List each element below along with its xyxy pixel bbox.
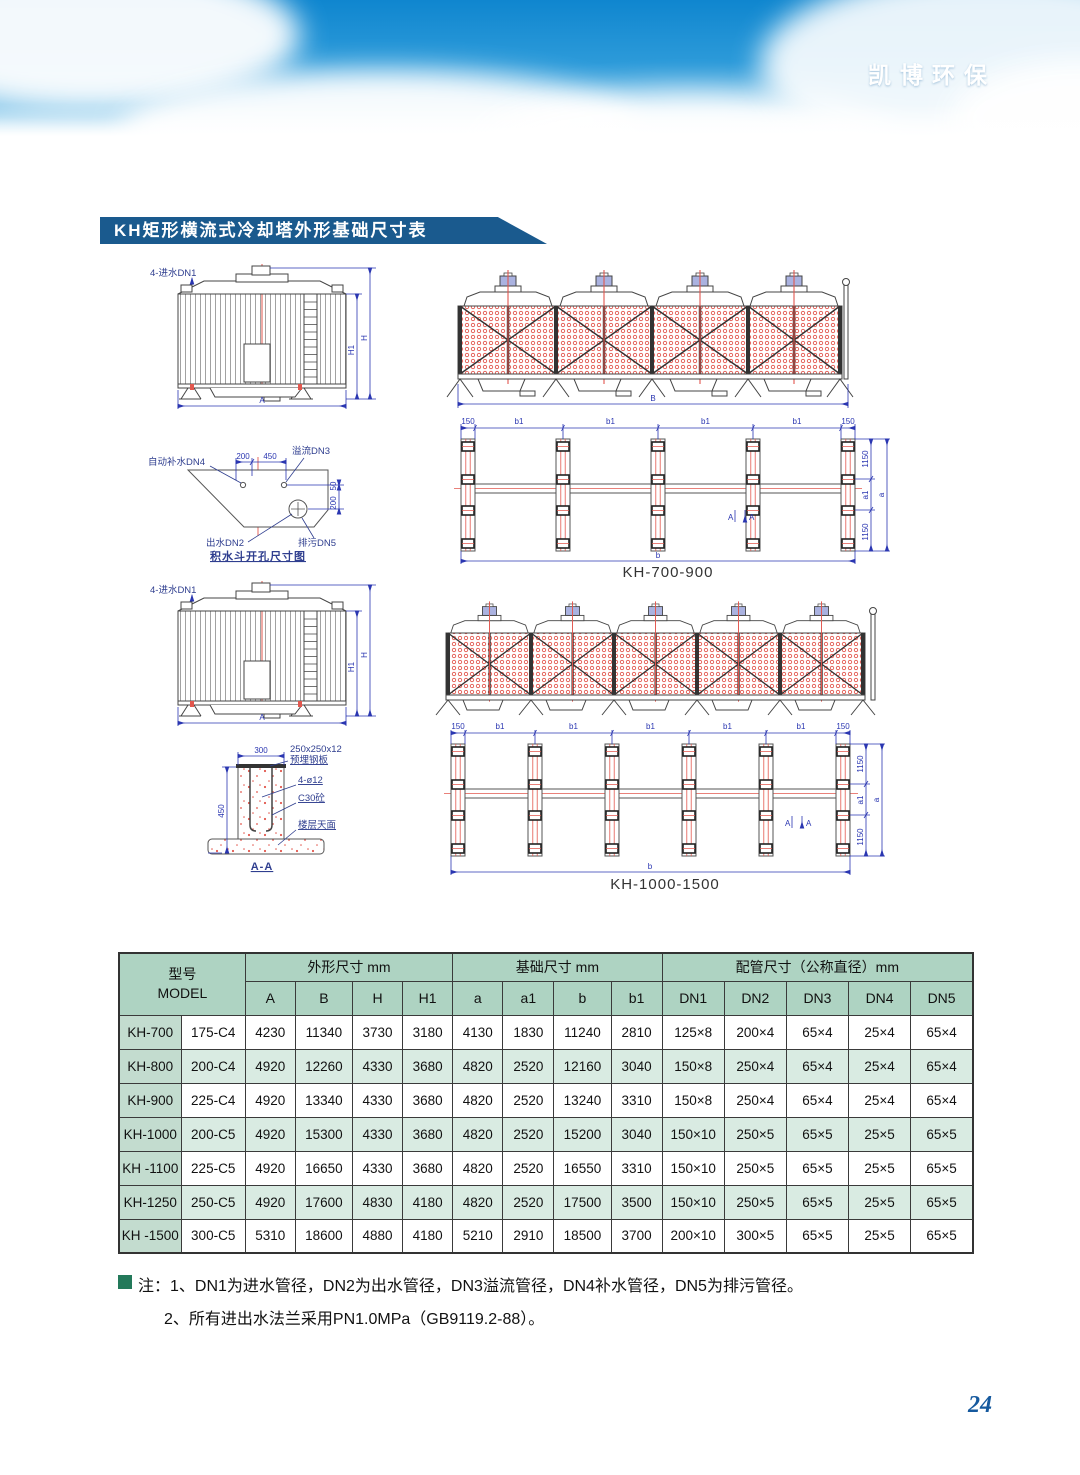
note-line-1: 注： 1、DN1为进水管径，DN2为出水管径，DN3溢流管径，DN4补水管径，D… bbox=[118, 1272, 978, 1296]
spec-cell: 65×4 bbox=[911, 1049, 973, 1083]
spec-cell: 3680 bbox=[403, 1083, 453, 1117]
col-header: H1 bbox=[403, 981, 453, 1015]
tower-side-view-2: 4-进水DN1 A H1 H bbox=[148, 581, 378, 731]
spec-cell: 3680 bbox=[403, 1117, 453, 1151]
table-row: KH-900225-C44920133404330368048202520132… bbox=[119, 1083, 973, 1117]
note-bullet-icon bbox=[118, 1275, 132, 1289]
spec-cell: 200×10 bbox=[662, 1219, 724, 1253]
spec-cell: 4820 bbox=[453, 1083, 503, 1117]
spec-cell: 65×5 bbox=[786, 1219, 848, 1253]
spec-cell: 25×5 bbox=[849, 1185, 911, 1219]
spec-cell: 3310 bbox=[611, 1151, 662, 1185]
dim-b1: b1 bbox=[723, 722, 732, 731]
spec-cell: 250×4 bbox=[724, 1049, 786, 1083]
table-row: KH-700175-C44230113403730318041301830112… bbox=[119, 1015, 973, 1049]
spec-cell: 4830 bbox=[352, 1185, 402, 1219]
spec-cell: 4820 bbox=[453, 1117, 503, 1151]
outlet-label: 出水DN2 bbox=[206, 537, 244, 549]
spec-table-body: KH-700175-C44230113403730318041301830112… bbox=[119, 1015, 973, 1253]
spec-cell: 200×4 bbox=[724, 1015, 786, 1049]
spec-cell: 25×4 bbox=[849, 1015, 911, 1049]
floor-label: 楼层天面 bbox=[298, 819, 336, 831]
section-mark-A: A bbox=[785, 819, 791, 828]
col-header: b bbox=[554, 981, 611, 1015]
dim-b1: b1 bbox=[701, 417, 710, 426]
spec-cell: 4130 bbox=[453, 1015, 503, 1049]
model-cell: KH -1100 bbox=[119, 1151, 181, 1185]
spec-cell: 25×4 bbox=[849, 1049, 911, 1083]
spec-cell: 65×5 bbox=[911, 1219, 973, 1253]
spec-cell: 65×5 bbox=[911, 1117, 973, 1151]
spec-cell: 17600 bbox=[295, 1185, 352, 1219]
spec-cell: 5310 bbox=[245, 1219, 295, 1253]
dim-150: 150 bbox=[451, 722, 465, 731]
spec-cell: 4180 bbox=[403, 1219, 453, 1253]
hopper-detail-drawing: 200 450 50 200 自动补水DN4 溢流DN3 出水DN2 排污DN5… bbox=[146, 432, 376, 562]
spec-cell: 4920 bbox=[245, 1151, 295, 1185]
spec-cell: 4920 bbox=[245, 1117, 295, 1151]
dim-b1: b1 bbox=[515, 417, 524, 426]
section-mark-A: A bbox=[806, 819, 812, 828]
dim-a: a bbox=[872, 797, 881, 802]
spec-cell: 150×8 bbox=[662, 1083, 724, 1117]
col-header: DN2 bbox=[724, 981, 786, 1015]
note-line-2: 2、所有进出水法兰采用PN1.0MPa（GB9119.2-88）。 bbox=[164, 1305, 978, 1329]
spec-cell: 3680 bbox=[403, 1049, 453, 1083]
spec-cell: 4330 bbox=[352, 1151, 402, 1185]
plan2-caption: KH-1000-1500 bbox=[430, 876, 900, 893]
spec-cell: 25×4 bbox=[849, 1083, 911, 1117]
spec-cell: 4820 bbox=[453, 1151, 503, 1185]
page-number: 24 bbox=[968, 1392, 992, 1419]
model-label-en: MODEL bbox=[120, 984, 245, 1004]
spec-cell: 18600 bbox=[295, 1219, 352, 1253]
spec-cell: 4920 bbox=[245, 1049, 295, 1083]
dim-A: A bbox=[259, 396, 265, 405]
overflow-label: 溢流DN3 bbox=[292, 445, 330, 457]
dim-b: b bbox=[648, 862, 653, 871]
spec-cell: 4820 bbox=[453, 1185, 503, 1219]
dim-150: 150 bbox=[841, 417, 855, 426]
dim-450: 450 bbox=[217, 804, 226, 818]
spec-cell: 65×4 bbox=[911, 1015, 973, 1049]
spec-cell: 250×5 bbox=[724, 1185, 786, 1219]
spec-cell: 65×4 bbox=[786, 1083, 848, 1117]
section-aa-drawing: 300 450 250x250x12 预埋钢板 4-ø12 C30砼 楼层天面 … bbox=[150, 735, 380, 875]
spec-cell: 300×5 bbox=[724, 1219, 786, 1253]
spec-cell: 150×10 bbox=[662, 1117, 724, 1151]
col-header-model: 型号 MODEL bbox=[119, 953, 245, 1015]
spec-cell: 2520 bbox=[503, 1117, 554, 1151]
spec-cell: 65×4 bbox=[786, 1049, 848, 1083]
col-header: DN4 bbox=[849, 981, 911, 1015]
dim-150: 150 bbox=[836, 722, 850, 731]
spec-cell: 4920 bbox=[245, 1083, 295, 1117]
elevation-4cell-drawing: B bbox=[440, 262, 870, 410]
dim-200r: 200 bbox=[329, 496, 338, 510]
note-label: 注： bbox=[138, 1272, 170, 1296]
spec-cell: 2520 bbox=[503, 1083, 554, 1117]
bolts-label: 4-ø12 bbox=[298, 775, 323, 786]
dim-300: 300 bbox=[254, 746, 268, 755]
spec-cell: 4230 bbox=[245, 1015, 295, 1049]
spec-cell: 11340 bbox=[295, 1015, 352, 1049]
col-header: H bbox=[352, 981, 402, 1015]
spec-cell: 3730 bbox=[352, 1015, 402, 1049]
spec-cell: 2810 bbox=[611, 1015, 662, 1049]
spec-table: 型号 MODEL 外形尺寸 mm 基础尺寸 mm 配管尺寸（公称直径）mm A … bbox=[118, 952, 974, 1254]
spec-cell: 150×8 bbox=[662, 1049, 724, 1083]
type-cell: 300-C5 bbox=[181, 1219, 245, 1253]
spec-cell: 17500 bbox=[554, 1185, 611, 1219]
col-header: a1 bbox=[503, 981, 554, 1015]
spec-cell: 150×10 bbox=[662, 1185, 724, 1219]
type-cell: 175-C4 bbox=[181, 1015, 245, 1049]
spec-cell: 4180 bbox=[403, 1185, 453, 1219]
dim-b: b bbox=[656, 551, 661, 560]
dim-b1: b1 bbox=[646, 722, 655, 731]
spec-cell: 150×10 bbox=[662, 1151, 724, 1185]
banner-fade bbox=[0, 104, 1080, 138]
spec-cell: 3310 bbox=[611, 1083, 662, 1117]
spec-cell: 15200 bbox=[554, 1117, 611, 1151]
spec-cell: 3180 bbox=[403, 1015, 453, 1049]
spec-cell: 250×4 bbox=[724, 1083, 786, 1117]
spec-cell: 2520 bbox=[503, 1151, 554, 1185]
spec-cell: 16650 bbox=[295, 1151, 352, 1185]
col-header: b1 bbox=[611, 981, 662, 1015]
concrete-label: C30砼 bbox=[298, 792, 325, 804]
dim-a: a bbox=[877, 492, 886, 497]
table-row: KH-800200-C44920122604330368048202520121… bbox=[119, 1049, 973, 1083]
table-row: KH -1500300-C553101860048804180521029101… bbox=[119, 1219, 973, 1253]
spec-cell: 4880 bbox=[352, 1219, 402, 1253]
spec-cell: 4330 bbox=[352, 1117, 402, 1151]
type-cell: 225-C4 bbox=[181, 1083, 245, 1117]
spec-cell: 250×5 bbox=[724, 1117, 786, 1151]
spec-cell: 125×8 bbox=[662, 1015, 724, 1049]
spec-cell: 13240 bbox=[554, 1083, 611, 1117]
model-cell: KH-900 bbox=[119, 1083, 181, 1117]
model-cell: KH-1250 bbox=[119, 1185, 181, 1219]
dim-H: H bbox=[360, 652, 369, 658]
dim-H1: H1 bbox=[347, 344, 356, 355]
note-text-1: 1、DN1为进水管径，DN2为出水管径，DN3溢流管径，DN4补水管径，DN5为… bbox=[170, 1272, 803, 1296]
col-header: DN1 bbox=[662, 981, 724, 1015]
dim-a1: a1 bbox=[861, 490, 870, 499]
dim-1150: 1150 bbox=[856, 755, 865, 773]
spec-cell: 3040 bbox=[611, 1049, 662, 1083]
col-header: DN5 bbox=[911, 981, 973, 1015]
spec-cell: 65×5 bbox=[786, 1185, 848, 1219]
group-header-piping: 配管尺寸（公称直径）mm bbox=[662, 953, 973, 981]
spec-cell: 4330 bbox=[352, 1049, 402, 1083]
spec-cell: 11240 bbox=[554, 1015, 611, 1049]
plate-label: 预埋钢板 bbox=[290, 754, 329, 766]
spec-cell: 65×5 bbox=[786, 1151, 848, 1185]
dim-200: 200 bbox=[236, 452, 250, 461]
model-cell: KH-1000 bbox=[119, 1117, 181, 1151]
spec-cell: 4330 bbox=[352, 1083, 402, 1117]
dim-b1: b1 bbox=[496, 722, 505, 731]
dim-b1: b1 bbox=[797, 722, 806, 731]
dim-1150: 1150 bbox=[856, 828, 865, 846]
spec-cell: 4820 bbox=[453, 1049, 503, 1083]
model-label-cn: 型号 bbox=[120, 965, 245, 985]
dim-1150: 1150 bbox=[861, 450, 870, 468]
spec-cell: 250×5 bbox=[724, 1151, 786, 1185]
group-header-foundation: 基础尺寸 mm bbox=[453, 953, 662, 981]
spec-cell: 16550 bbox=[554, 1151, 611, 1185]
dim-450: 450 bbox=[263, 452, 277, 461]
dim-b1: b1 bbox=[606, 417, 615, 426]
spec-cell: 12260 bbox=[295, 1049, 352, 1083]
dim-H: H bbox=[360, 335, 369, 341]
spec-cell: 25×5 bbox=[849, 1151, 911, 1185]
dim-b1: b1 bbox=[569, 722, 578, 731]
type-cell: 200-C5 bbox=[181, 1117, 245, 1151]
dim-B: B bbox=[650, 394, 655, 403]
dim-50: 50 bbox=[329, 481, 338, 490]
plate-label-size: 250x250x12 bbox=[290, 744, 342, 755]
spec-cell: 3040 bbox=[611, 1117, 662, 1151]
col-header: A bbox=[245, 981, 295, 1015]
tower-side-view-1: 4-进水DN1 A H1 H bbox=[148, 264, 378, 414]
type-cell: 200-C4 bbox=[181, 1049, 245, 1083]
inlet-label: 4-进水DN1 bbox=[150, 584, 196, 596]
elevation-5cell-drawing bbox=[433, 593, 883, 723]
type-cell: 250-C5 bbox=[181, 1185, 245, 1219]
spec-cell: 65×5 bbox=[911, 1185, 973, 1219]
dim-a1: a1 bbox=[856, 795, 865, 804]
col-header: a bbox=[453, 981, 503, 1015]
dim-1150: 1150 bbox=[861, 523, 870, 541]
section-title: KH矩形横流式冷却塔外形基础尺寸表 bbox=[114, 221, 428, 240]
table-row: KH-1000200-C5492015300433036804820252015… bbox=[119, 1117, 973, 1151]
spec-cell: 1830 bbox=[503, 1015, 554, 1049]
spec-cell: 25×5 bbox=[849, 1219, 911, 1253]
makeup-label: 自动补水DN4 bbox=[148, 456, 205, 468]
spec-cell: 3700 bbox=[611, 1219, 662, 1253]
spec-cell: 5210 bbox=[453, 1219, 503, 1253]
spec-cell: 3500 bbox=[611, 1185, 662, 1219]
group-header-outline: 外形尺寸 mm bbox=[245, 953, 452, 981]
dim-b1: b1 bbox=[793, 417, 802, 426]
inlet-label: 4-进水DN1 bbox=[150, 267, 196, 279]
spec-cell: 4920 bbox=[245, 1185, 295, 1219]
dim-H1: H1 bbox=[347, 661, 356, 672]
spec-cell: 3680 bbox=[403, 1151, 453, 1185]
spec-cell: 65×4 bbox=[911, 1083, 973, 1117]
spec-cell: 2910 bbox=[503, 1219, 554, 1253]
brand-name: 凯博环保 bbox=[868, 56, 996, 90]
table-row: KH -1100225-C549201665043303680482025201… bbox=[119, 1151, 973, 1185]
spec-cell: 12160 bbox=[554, 1049, 611, 1083]
section-mark-A: A bbox=[749, 513, 755, 522]
spec-cell: 15300 bbox=[295, 1117, 352, 1151]
col-header: B bbox=[295, 981, 352, 1015]
spec-cell: 65×5 bbox=[911, 1151, 973, 1185]
spec-cell: 65×5 bbox=[786, 1117, 848, 1151]
spec-cell: 65×4 bbox=[786, 1015, 848, 1049]
foundation-plan-2: 150 b1 b1 b1 b1 b1 150 1150 a1 1150 a b … bbox=[430, 722, 900, 880]
dim-A: A bbox=[259, 713, 265, 722]
dim-150: 150 bbox=[461, 417, 475, 426]
model-cell: KH-800 bbox=[119, 1049, 181, 1083]
foundation-plan-1: 150 b1 b1 b1 b1 150 1150 a1 1150 a b A A bbox=[438, 414, 898, 566]
spec-cell: 25×5 bbox=[849, 1117, 911, 1151]
spec-cell: 18500 bbox=[554, 1219, 611, 1253]
drain-label: 排污DN5 bbox=[298, 537, 336, 549]
model-cell: KH-700 bbox=[119, 1015, 181, 1049]
catalog-page: 凯博环保 KH矩形横流式冷却塔外形基础尺寸表 4-进水DN1 A H1 H 20… bbox=[0, 0, 1080, 1475]
spec-cell: 2520 bbox=[503, 1049, 554, 1083]
section-title-bar: KH矩形横流式冷却塔外形基础尺寸表 bbox=[100, 217, 547, 244]
model-cell: KH -1500 bbox=[119, 1219, 181, 1253]
section-mark-A: A bbox=[728, 513, 734, 522]
hopper-caption: 积水斗开孔尺寸图 bbox=[210, 549, 306, 563]
col-header: DN3 bbox=[786, 981, 848, 1015]
spec-cell: 2520 bbox=[503, 1185, 554, 1219]
section-caption: A-A bbox=[251, 861, 274, 873]
spec-cell: 13340 bbox=[295, 1083, 352, 1117]
table-row: KH-1250250-C5492017600483041804820252017… bbox=[119, 1185, 973, 1219]
type-cell: 225-C5 bbox=[181, 1151, 245, 1185]
plan1-caption: KH-700-900 bbox=[438, 564, 898, 581]
notes-block: 注： 1、DN1为进水管径，DN2为出水管径，DN3溢流管径，DN4补水管径，D… bbox=[118, 1272, 978, 1329]
